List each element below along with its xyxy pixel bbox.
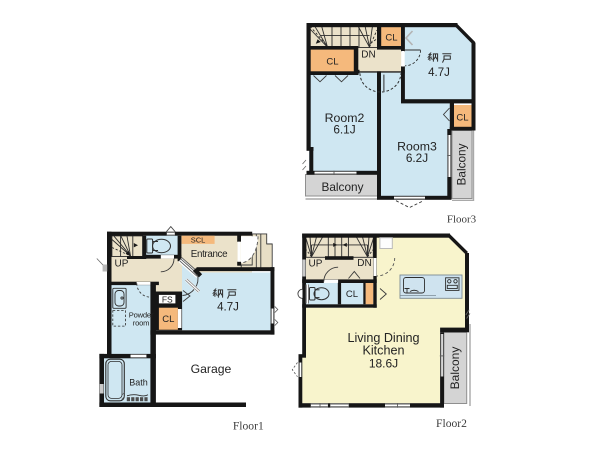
svg-text:CL: CL: [326, 57, 338, 68]
svg-text:CL: CL: [385, 33, 397, 44]
svg-text:CL: CL: [346, 289, 358, 300]
svg-text:DN: DN: [357, 258, 371, 269]
svg-text:4.7J: 4.7J: [217, 301, 239, 313]
svg-text:SCL: SCL: [191, 235, 206, 244]
svg-text:DN: DN: [361, 50, 375, 61]
svg-text:Floor3: Floor3: [447, 213, 477, 225]
svg-text:Floor2: Floor2: [436, 417, 467, 430]
svg-text:6.1J: 6.1J: [333, 123, 355, 137]
svg-text:Garage: Garage: [191, 362, 232, 376]
svg-text:Floor1: Floor1: [233, 419, 264, 432]
svg-text:18.6J: 18.6J: [369, 356, 398, 370]
svg-text:UP: UP: [115, 258, 129, 269]
svg-text:6.2J: 6.2J: [406, 151, 428, 165]
svg-text:CL: CL: [162, 314, 174, 325]
svg-text:4.7J: 4.7J: [428, 67, 450, 79]
svg-text:Balcony: Balcony: [455, 143, 469, 185]
svg-text:Balcony: Balcony: [448, 347, 462, 390]
svg-text:CL: CL: [456, 113, 468, 124]
svg-text:FS: FS: [162, 295, 173, 305]
svg-text:Entrance: Entrance: [191, 249, 228, 260]
svg-text:Bath: Bath: [129, 377, 148, 387]
svg-text:room: room: [133, 319, 150, 328]
svg-text:UP: UP: [309, 258, 323, 269]
svg-text:Balcony: Balcony: [322, 180, 364, 194]
